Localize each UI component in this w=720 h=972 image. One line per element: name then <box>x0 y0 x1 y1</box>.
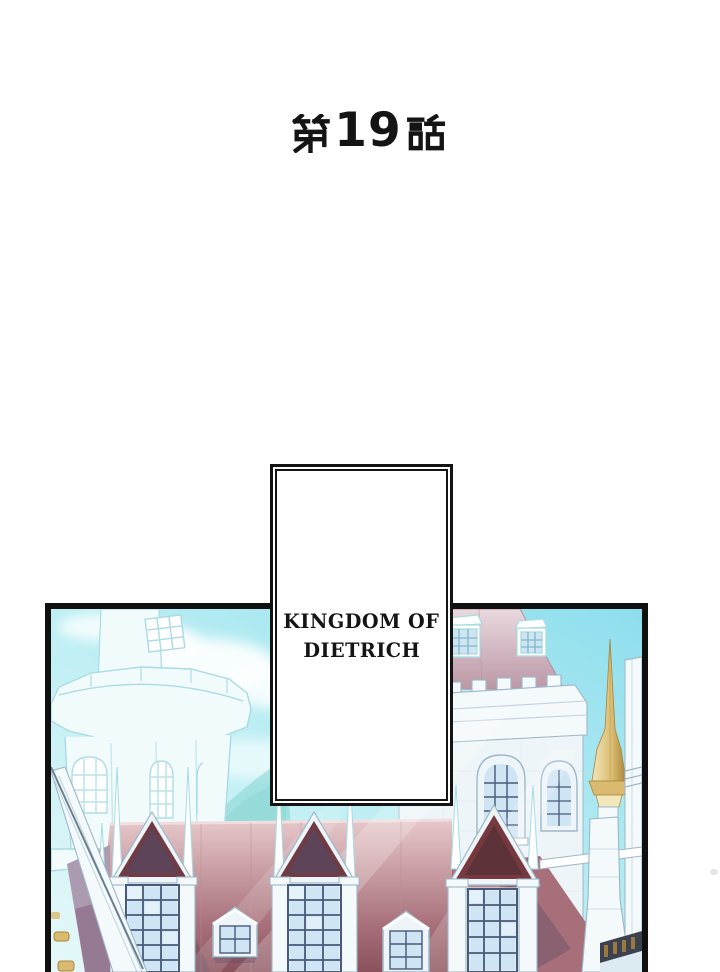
location-caption-inner-border: KINGDOM OF DIETRICH <box>275 469 448 801</box>
kanji-dai-icon <box>291 114 330 153</box>
scan-artifact <box>710 869 718 875</box>
location-caption-box: KINGDOM OF DIETRICH <box>270 464 453 806</box>
chapter-number: 19 <box>334 107 401 154</box>
caption-line1: KINGDOM OF <box>283 609 439 633</box>
kanji-wa-icon <box>406 114 445 153</box>
manga-page: 19 <box>0 0 720 972</box>
right-edge-building <box>625 657 642 972</box>
caption-line2: DIETRICH <box>303 638 420 662</box>
chapter-title: 19 <box>8 110 720 156</box>
